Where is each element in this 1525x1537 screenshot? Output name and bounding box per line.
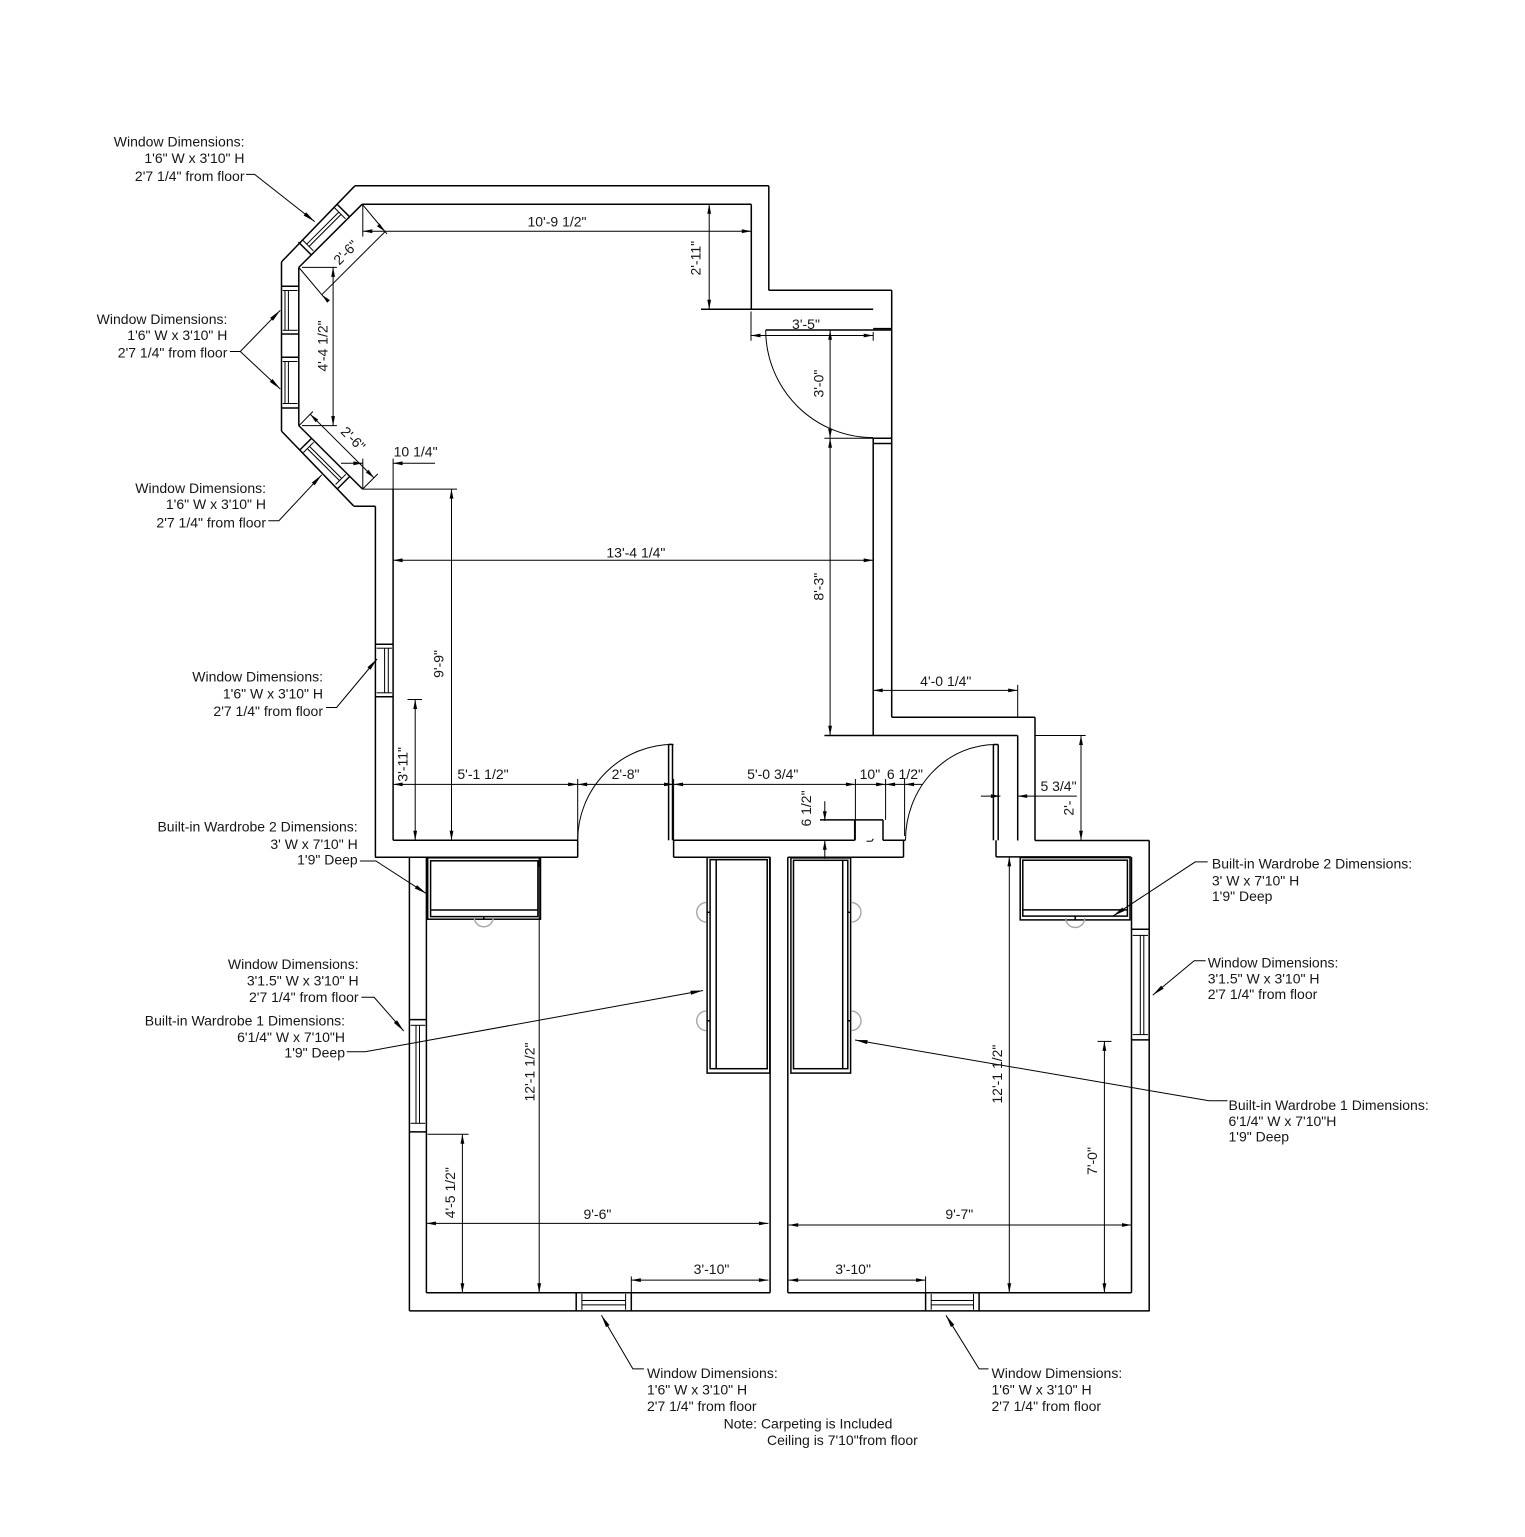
svg-text:3'1.5" W x 3'10" H: 3'1.5" W x 3'10" H: [1208, 971, 1320, 987]
svg-text:2'-8": 2'-8": [612, 766, 640, 782]
svg-text:1'6" W x 3'10" H: 1'6" W x 3'10" H: [647, 1382, 747, 1398]
svg-text:2'7 1/4" from floor: 2'7 1/4" from floor: [992, 1398, 1102, 1414]
svg-text:Window Dimensions:: Window Dimensions:: [1208, 955, 1339, 971]
svg-text:6 1/2": 6 1/2": [887, 766, 923, 782]
svg-text:4'-4 1/2": 4'-4 1/2": [314, 320, 330, 371]
svg-text:3'-5": 3'-5": [792, 316, 820, 332]
svg-text:2'7 1/4" from floor: 2'7 1/4" from floor: [156, 515, 266, 531]
svg-text:Window Dimensions:: Window Dimensions:: [192, 669, 323, 685]
svg-text:Window Dimensions:: Window Dimensions:: [228, 956, 359, 972]
svg-text:7'-0": 7'-0": [1084, 1147, 1100, 1175]
svg-text:Built-in Wardrobe 2 Dimensions: Built-in Wardrobe 2 Dimensions:: [157, 819, 357, 835]
svg-text:3'-0": 3'-0": [810, 370, 826, 398]
svg-text:Built-in Wardrobe 1 Dimensions: Built-in Wardrobe 1 Dimensions:: [1229, 1097, 1429, 1113]
svg-text:3'1.5" W x 3'10" H: 3'1.5" W x 3'10" H: [247, 973, 359, 989]
svg-text:1'6" W x 3'10" H: 1'6" W x 3'10" H: [992, 1382, 1092, 1398]
svg-text:1'6" W x 3'10" H: 1'6" W x 3'10" H: [144, 150, 244, 166]
svg-text:1'6" W x 3'10" H: 1'6" W x 3'10" H: [223, 686, 323, 702]
svg-text:2'7 1/4" from floor: 2'7 1/4" from floor: [1208, 986, 1318, 1002]
svg-text:3'-11": 3'-11": [394, 747, 410, 782]
svg-text:2'7 1/4" from floor: 2'7 1/4" from floor: [647, 1398, 757, 1414]
svg-text:12'-1 1/2": 12'-1 1/2": [522, 1042, 538, 1101]
svg-text:2'-11": 2'-11": [687, 241, 703, 276]
svg-text:Window Dimensions:: Window Dimensions:: [114, 134, 245, 150]
svg-text:Window Dimensions:: Window Dimensions:: [97, 311, 228, 327]
svg-text:Built-in Wardrobe 2 Dimensions: Built-in Wardrobe 2 Dimensions:: [1212, 856, 1412, 872]
svg-text:2'-: 2'-: [1061, 800, 1077, 815]
svg-text:1'6" W x 3'10" H: 1'6" W x 3'10" H: [166, 496, 266, 512]
svg-text:6'1/4" W x 7'10"H: 6'1/4" W x 7'10"H: [237, 1029, 345, 1045]
svg-text:Window Dimensions:: Window Dimensions:: [992, 1365, 1123, 1381]
svg-text:Built-in Wardrobe 1 Dimensions: Built-in Wardrobe 1 Dimensions:: [145, 1013, 345, 1029]
svg-text:10 1/4": 10 1/4": [394, 444, 438, 460]
svg-text:10": 10": [860, 766, 881, 782]
svg-text:6 1/2": 6 1/2": [798, 790, 814, 826]
svg-text:Ceiling is 7'10"from floor: Ceiling is 7'10"from floor: [767, 1432, 918, 1448]
svg-text:13'-4 1/4": 13'-4 1/4": [606, 545, 665, 561]
svg-text:5'-1 1/2": 5'-1 1/2": [457, 766, 508, 782]
svg-text:3'-10": 3'-10": [694, 1261, 730, 1277]
svg-text:2'7 1/4" from floor: 2'7 1/4" from floor: [213, 703, 323, 719]
svg-text:1'9" Deep: 1'9" Deep: [1212, 888, 1273, 904]
svg-text:4'-0 1/4": 4'-0 1/4": [920, 673, 971, 689]
svg-text:6'1/4" W x 7'10"H: 6'1/4" W x 7'10"H: [1229, 1113, 1337, 1129]
svg-text:5'-0 3/4": 5'-0 3/4": [747, 766, 798, 782]
svg-text:9'-6": 9'-6": [583, 1206, 611, 1222]
svg-text:2'7 1/4" from floor: 2'7 1/4" from floor: [249, 989, 359, 1005]
svg-text:9'-7": 9'-7": [945, 1206, 973, 1222]
svg-text:4'-5 1/2": 4'-5 1/2": [442, 1167, 458, 1218]
svg-text:2'7 1/4" from floor: 2'7 1/4" from floor: [135, 168, 245, 184]
svg-text:Window Dimensions:: Window Dimensions:: [135, 480, 266, 496]
svg-text:12'-1 1/2": 12'-1 1/2": [989, 1045, 1005, 1104]
svg-text:3' W x 7'10" H: 3' W x 7'10" H: [1212, 873, 1299, 889]
svg-text:5 3/4": 5 3/4": [1040, 778, 1076, 794]
svg-text:1'9" Deep: 1'9" Deep: [297, 852, 358, 868]
svg-text:1'9" Deep: 1'9" Deep: [1229, 1129, 1290, 1145]
svg-text:9'-9": 9'-9": [431, 650, 447, 678]
svg-text:Window Dimensions:: Window Dimensions:: [647, 1365, 778, 1381]
svg-text:10'-9 1/2": 10'-9 1/2": [527, 214, 586, 230]
svg-text:1'9" Deep: 1'9" Deep: [284, 1045, 345, 1061]
svg-text:3'-10": 3'-10": [835, 1261, 871, 1277]
svg-text:2'7 1/4" from floor: 2'7 1/4" from floor: [118, 345, 228, 361]
svg-text:Note: Carpeting is Included: Note: Carpeting is Included: [724, 1415, 893, 1431]
svg-text:8'-3": 8'-3": [810, 573, 826, 601]
svg-text:3' W x 7'10" H: 3' W x 7'10" H: [270, 836, 357, 852]
svg-text:1'6" W x 3'10" H: 1'6" W x 3'10" H: [127, 327, 227, 343]
